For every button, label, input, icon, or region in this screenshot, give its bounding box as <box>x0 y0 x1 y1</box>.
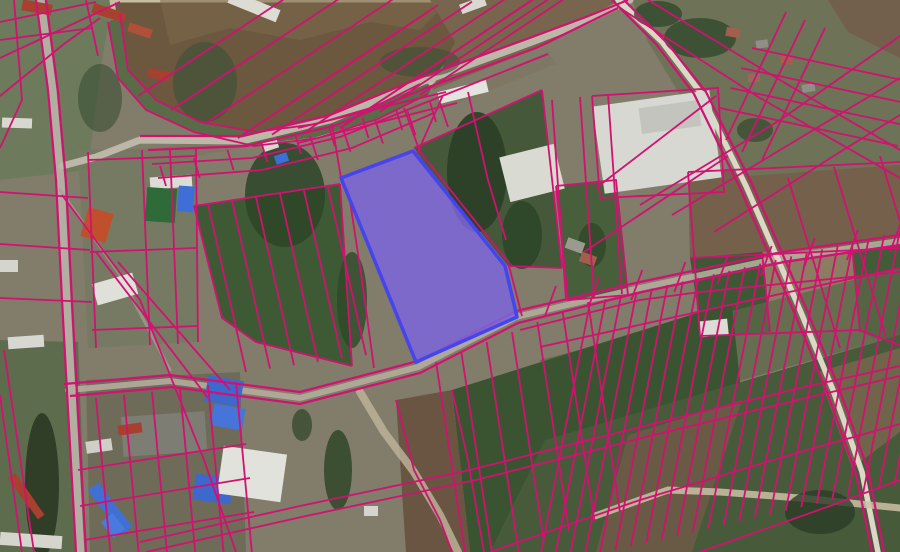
building <box>0 260 18 272</box>
trees <box>78 64 122 132</box>
trees <box>337 252 367 348</box>
trees <box>380 47 460 77</box>
trees <box>292 409 312 441</box>
trees <box>634 1 682 27</box>
map-canvas[interactable] <box>0 0 900 552</box>
building <box>217 446 287 502</box>
trees <box>785 490 855 534</box>
building <box>2 117 32 128</box>
satellite-cadastre-layer <box>0 0 900 552</box>
building <box>177 185 195 212</box>
trees <box>502 201 542 269</box>
trees <box>737 118 773 142</box>
building <box>756 39 769 49</box>
building <box>364 506 378 516</box>
building <box>8 335 45 349</box>
